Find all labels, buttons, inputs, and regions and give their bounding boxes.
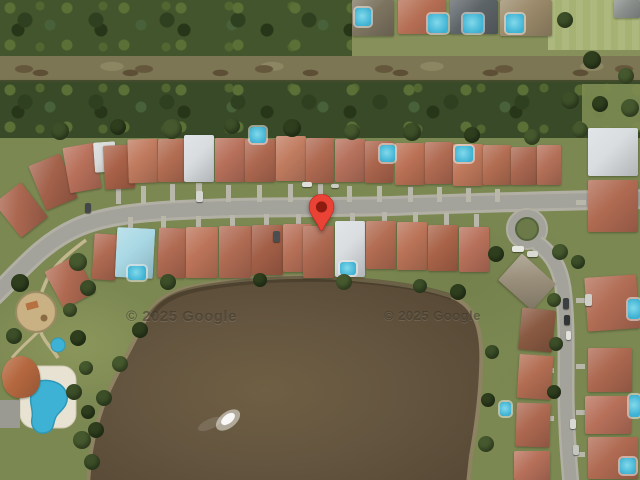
- house-roof: [184, 135, 214, 182]
- tree: [253, 273, 267, 287]
- car: [273, 231, 280, 242]
- tree: [160, 274, 176, 290]
- house-roof: [459, 227, 489, 272]
- pool: [455, 146, 473, 162]
- pool: [355, 8, 371, 26]
- driveway: [466, 188, 471, 202]
- house-roof: [335, 139, 365, 182]
- pool: [428, 14, 448, 33]
- tree: [561, 91, 579, 109]
- house-roof: [588, 348, 632, 392]
- house-roof: [186, 227, 218, 278]
- tree: [81, 405, 95, 419]
- tree: [69, 253, 87, 271]
- car: [331, 184, 339, 188]
- google-attribution: © 2025 Google: [384, 308, 481, 323]
- pin-dot: [316, 201, 327, 212]
- driveway: [437, 187, 442, 202]
- driveway: [576, 200, 586, 205]
- tree: [621, 99, 639, 117]
- tree: [88, 422, 104, 438]
- tree: [571, 255, 585, 269]
- car: [302, 182, 312, 187]
- house-roof: [588, 128, 638, 176]
- car: [527, 251, 538, 257]
- pool: [128, 266, 146, 280]
- driveway: [288, 184, 293, 202]
- tree: [11, 274, 29, 292]
- driveway: [474, 214, 479, 228]
- car: [573, 445, 579, 455]
- tree: [344, 124, 360, 140]
- house-roof: [306, 138, 334, 183]
- house-roof: [397, 222, 427, 270]
- tree: [66, 384, 82, 400]
- tree: [80, 280, 96, 296]
- car: [196, 191, 203, 202]
- house-roof: [514, 451, 550, 480]
- driveway: [141, 186, 146, 204]
- house-roof: [157, 228, 187, 279]
- house-roof: [483, 145, 511, 185]
- tree: [283, 119, 301, 137]
- tree: [618, 68, 634, 84]
- house-roof: [219, 226, 251, 278]
- car: [512, 246, 524, 252]
- tree: [592, 96, 608, 112]
- house-roof: [215, 138, 245, 182]
- pool: [463, 14, 483, 33]
- pool: [628, 299, 640, 319]
- pool: [506, 14, 524, 33]
- driveway: [170, 184, 175, 202]
- house-roof: [537, 145, 561, 185]
- house-roof: [614, 0, 640, 18]
- pool: [380, 145, 395, 162]
- tree: [524, 129, 540, 145]
- driveway: [257, 185, 262, 202]
- house-roof: [588, 180, 638, 232]
- house-roof: [276, 136, 306, 181]
- tree: [79, 361, 93, 375]
- tree: [336, 274, 352, 290]
- house-roof: [127, 138, 159, 183]
- location-pin-marker[interactable]: [306, 193, 337, 237]
- tree: [485, 345, 499, 359]
- pool: [620, 458, 636, 474]
- car: [563, 298, 569, 309]
- pool: [629, 395, 640, 417]
- driveway: [377, 186, 382, 202]
- driveway: [576, 298, 585, 303]
- pool: [500, 402, 511, 416]
- tree: [549, 337, 563, 351]
- tree: [51, 122, 69, 140]
- house-roof: [515, 402, 551, 447]
- map-canvas[interactable]: © 2025 Google © 2025 Google: [0, 0, 640, 480]
- tree: [110, 119, 126, 135]
- car: [85, 203, 91, 213]
- house-roof: [245, 139, 275, 182]
- tree: [84, 454, 100, 470]
- tree: [162, 119, 182, 139]
- car: [570, 419, 576, 429]
- tree: [464, 127, 480, 143]
- driveway: [226, 185, 231, 202]
- tree: [450, 284, 466, 300]
- house-roof: [425, 142, 453, 184]
- tree: [583, 51, 601, 69]
- tree: [547, 385, 561, 399]
- tree: [478, 436, 494, 452]
- tree: [572, 122, 588, 138]
- google-attribution: © 2025 Google: [126, 308, 237, 325]
- tree: [224, 118, 240, 134]
- tree: [488, 246, 504, 262]
- house-roof: [0, 354, 43, 401]
- pool: [250, 127, 266, 143]
- house-roof: [158, 139, 186, 182]
- driveway: [495, 189, 500, 202]
- driveway: [576, 410, 585, 415]
- tree: [547, 293, 561, 307]
- car: [585, 294, 592, 306]
- house-roof: [585, 396, 631, 434]
- house-roof: [511, 147, 537, 185]
- tree: [70, 330, 86, 346]
- car: [564, 315, 570, 325]
- car: [566, 331, 571, 340]
- tree: [481, 393, 495, 407]
- driveway: [408, 187, 413, 202]
- tree: [413, 279, 427, 293]
- tree: [557, 12, 573, 28]
- tree: [63, 303, 77, 317]
- imagery-features: [0, 0, 640, 480]
- tree: [552, 244, 568, 260]
- driveway: [347, 186, 352, 202]
- house-roof: [428, 225, 458, 271]
- tree: [6, 328, 22, 344]
- tree: [403, 123, 421, 141]
- house-roof: [395, 143, 425, 185]
- tree: [96, 390, 112, 406]
- driveway: [576, 364, 585, 369]
- house-roof: [366, 221, 396, 269]
- tree: [112, 356, 128, 372]
